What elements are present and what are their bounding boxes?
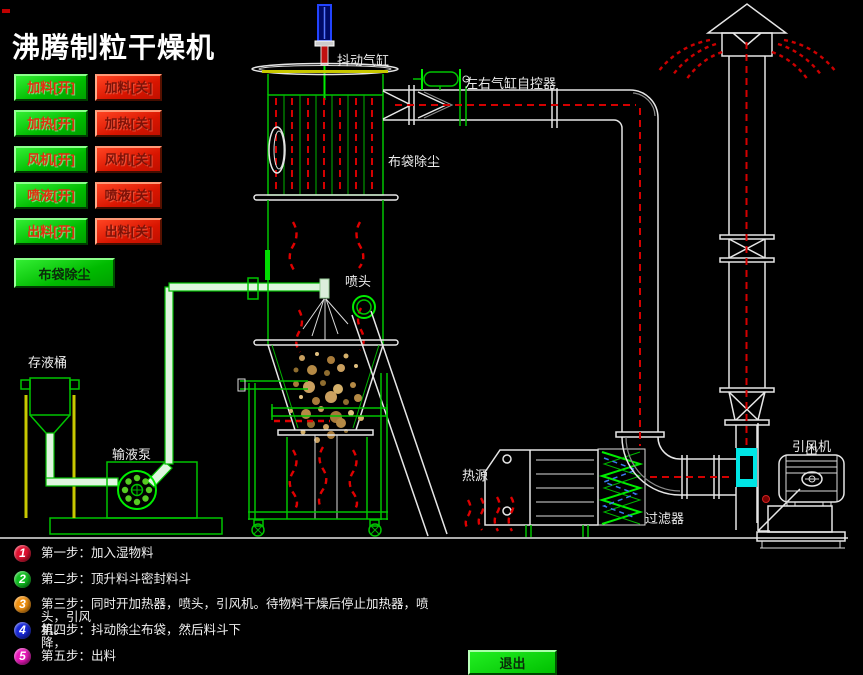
step-item: 1 第一步：加入湿物料 — [14, 545, 446, 562]
step-text: 第五步：出料 — [41, 648, 116, 663]
step-number-badge: 5 — [14, 648, 31, 665]
step-text: 第四步：抖动除尘布袋，然后料斗下 降， — [41, 622, 241, 650]
label-shake-cylinder: 抖动气缸 — [337, 50, 389, 69]
label-spray-head: 喷头 — [345, 271, 371, 290]
step-number-badge: 4 — [14, 622, 31, 639]
control-button-panel: 加料[开] 加料[关] 加热[开] 加热[关] 风机[开] 风机[关] 喷液[开… — [14, 74, 162, 245]
step-text: 第一步：加入湿物料 — [41, 545, 154, 560]
label-lr-cylinder-controller: 左右气缸自控器 — [465, 73, 556, 92]
bag-dust-button[interactable]: 布袋除尘 — [14, 258, 115, 288]
top-duct-drawing — [383, 69, 736, 499]
fan-off-button[interactable]: 风机[关] — [95, 146, 162, 173]
spray-on-button[interactable]: 喷液[开] — [14, 182, 88, 209]
step-number-badge: 1 — [14, 545, 31, 562]
step-item: 2 第二步：顶升料斗密封料斗 — [14, 571, 446, 588]
feed-off-button[interactable]: 加料[关] — [95, 74, 162, 101]
spray-off-button[interactable]: 喷液[关] — [95, 182, 162, 209]
heat-on-button[interactable]: 加热[开] — [14, 110, 88, 137]
hmi-screen: 沸腾制粒干燥机 加料[开] 加料[关] 加热[开] 加热[关] 风机[开] 风机… — [0, 0, 863, 675]
feed-on-button[interactable]: 加料[开] — [14, 74, 88, 101]
fan-on-button[interactable]: 风机[开] — [14, 146, 88, 173]
label-liquid-tank: 存液桶 — [28, 352, 67, 371]
label-induced-fan: 引风机 — [792, 436, 831, 455]
exit-button[interactable]: 退出 — [468, 650, 557, 675]
discharge-off-button[interactable]: 出料[关] — [95, 218, 162, 245]
label-liquid-pump: 输液泵 — [112, 444, 151, 463]
step-number-badge: 3 — [14, 596, 31, 613]
stray-mark — [2, 9, 10, 13]
label-heat-source: 热源 — [462, 465, 488, 484]
label-bag-filter: 布袋除尘 — [388, 151, 440, 170]
page-title: 沸腾制粒干燥机 — [12, 26, 215, 66]
label-filter: 过滤器 — [645, 508, 684, 527]
step-item: 4 第四步：抖动除尘布袋，然后料斗下 降， — [14, 622, 446, 650]
step-number-badge: 2 — [14, 571, 31, 588]
cart-drawing — [238, 373, 388, 536]
step-text: 第二步：顶升料斗密封料斗 — [41, 571, 191, 586]
heat-filter-drawing — [466, 449, 645, 537]
step-item: 5 第五步：出料 — [14, 648, 446, 665]
discharge-on-button[interactable]: 出料[开] — [14, 218, 88, 245]
heat-off-button[interactable]: 加热[关] — [95, 110, 162, 137]
